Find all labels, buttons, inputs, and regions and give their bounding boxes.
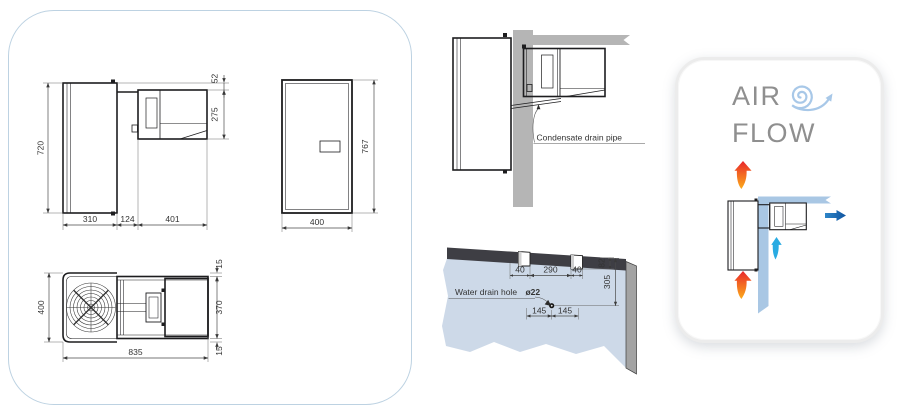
front-view-drawing: 767 400 bbox=[270, 60, 385, 240]
dim-front-width: 400 bbox=[310, 217, 324, 227]
dim-body: 370 bbox=[214, 300, 224, 314]
side-view-unit bbox=[63, 80, 207, 216]
page: 720 52 275 310 124 401 bbox=[0, 0, 900, 416]
front-view-dimensions: 767 400 bbox=[282, 80, 378, 232]
dim-305: 305 bbox=[602, 275, 612, 289]
intake-air-up-arrow bbox=[771, 237, 781, 259]
dim-length: 835 bbox=[128, 347, 142, 357]
hole-diameter: ø22 bbox=[525, 287, 540, 297]
airflow-spiral-icon bbox=[792, 87, 835, 111]
svg-text:Water drain hole ø22: Water drain hole ø22 bbox=[455, 287, 540, 297]
airflow-diagram bbox=[678, 60, 881, 340]
dim-290: 290 bbox=[543, 265, 557, 275]
wall bbox=[513, 30, 630, 207]
water-drain-label: Water drain hole bbox=[455, 287, 517, 297]
dim-82: 82 bbox=[597, 258, 607, 268]
dim-wall: 124 bbox=[120, 214, 134, 224]
dim-145-left: 145 bbox=[532, 306, 546, 316]
top-view-unit bbox=[63, 273, 208, 342]
water-drain-diagram: 40 290 40 82 305 145 145 Water drain hol… bbox=[440, 228, 665, 393]
fan-grille bbox=[67, 283, 116, 332]
front-view-unit bbox=[282, 80, 352, 213]
side-view-drawing: 720 52 275 310 124 401 bbox=[36, 55, 236, 240]
wall-mount-diagram: Condensate drain pipe bbox=[440, 20, 650, 220]
condensate-callout: Condensate drain pipe bbox=[533, 104, 645, 143]
dim-145-right: 145 bbox=[558, 306, 572, 316]
dim-top-margin: 15 bbox=[214, 259, 224, 269]
top-view-drawing: 400 15 370 15 835 bbox=[36, 254, 236, 379]
side-view-dimensions: 720 52 275 310 124 401 bbox=[36, 74, 230, 230]
dim-depth-out: 401 bbox=[165, 214, 179, 224]
dim-top-gap: 52 bbox=[210, 74, 220, 84]
dim-40-left: 40 bbox=[515, 265, 525, 275]
dim-bottom-margin: 15 bbox=[214, 346, 224, 356]
hot-air-up-arrow-bottom bbox=[734, 271, 751, 299]
dim-front-height: 767 bbox=[360, 139, 370, 153]
dim-top-width: 400 bbox=[36, 300, 46, 314]
dim-unit-height: 275 bbox=[210, 107, 220, 121]
dim-40-right: 40 bbox=[572, 265, 582, 275]
condensate-label: Condensate drain pipe bbox=[537, 133, 623, 143]
hot-air-up-arrow-top bbox=[734, 161, 751, 189]
flow-wall bbox=[758, 197, 831, 314]
dim-height: 720 bbox=[36, 141, 46, 155]
exhaust-right-arrow bbox=[825, 210, 846, 221]
airflow-panel: AIR FLOW bbox=[675, 57, 884, 343]
dim-depth-in: 310 bbox=[83, 214, 97, 224]
